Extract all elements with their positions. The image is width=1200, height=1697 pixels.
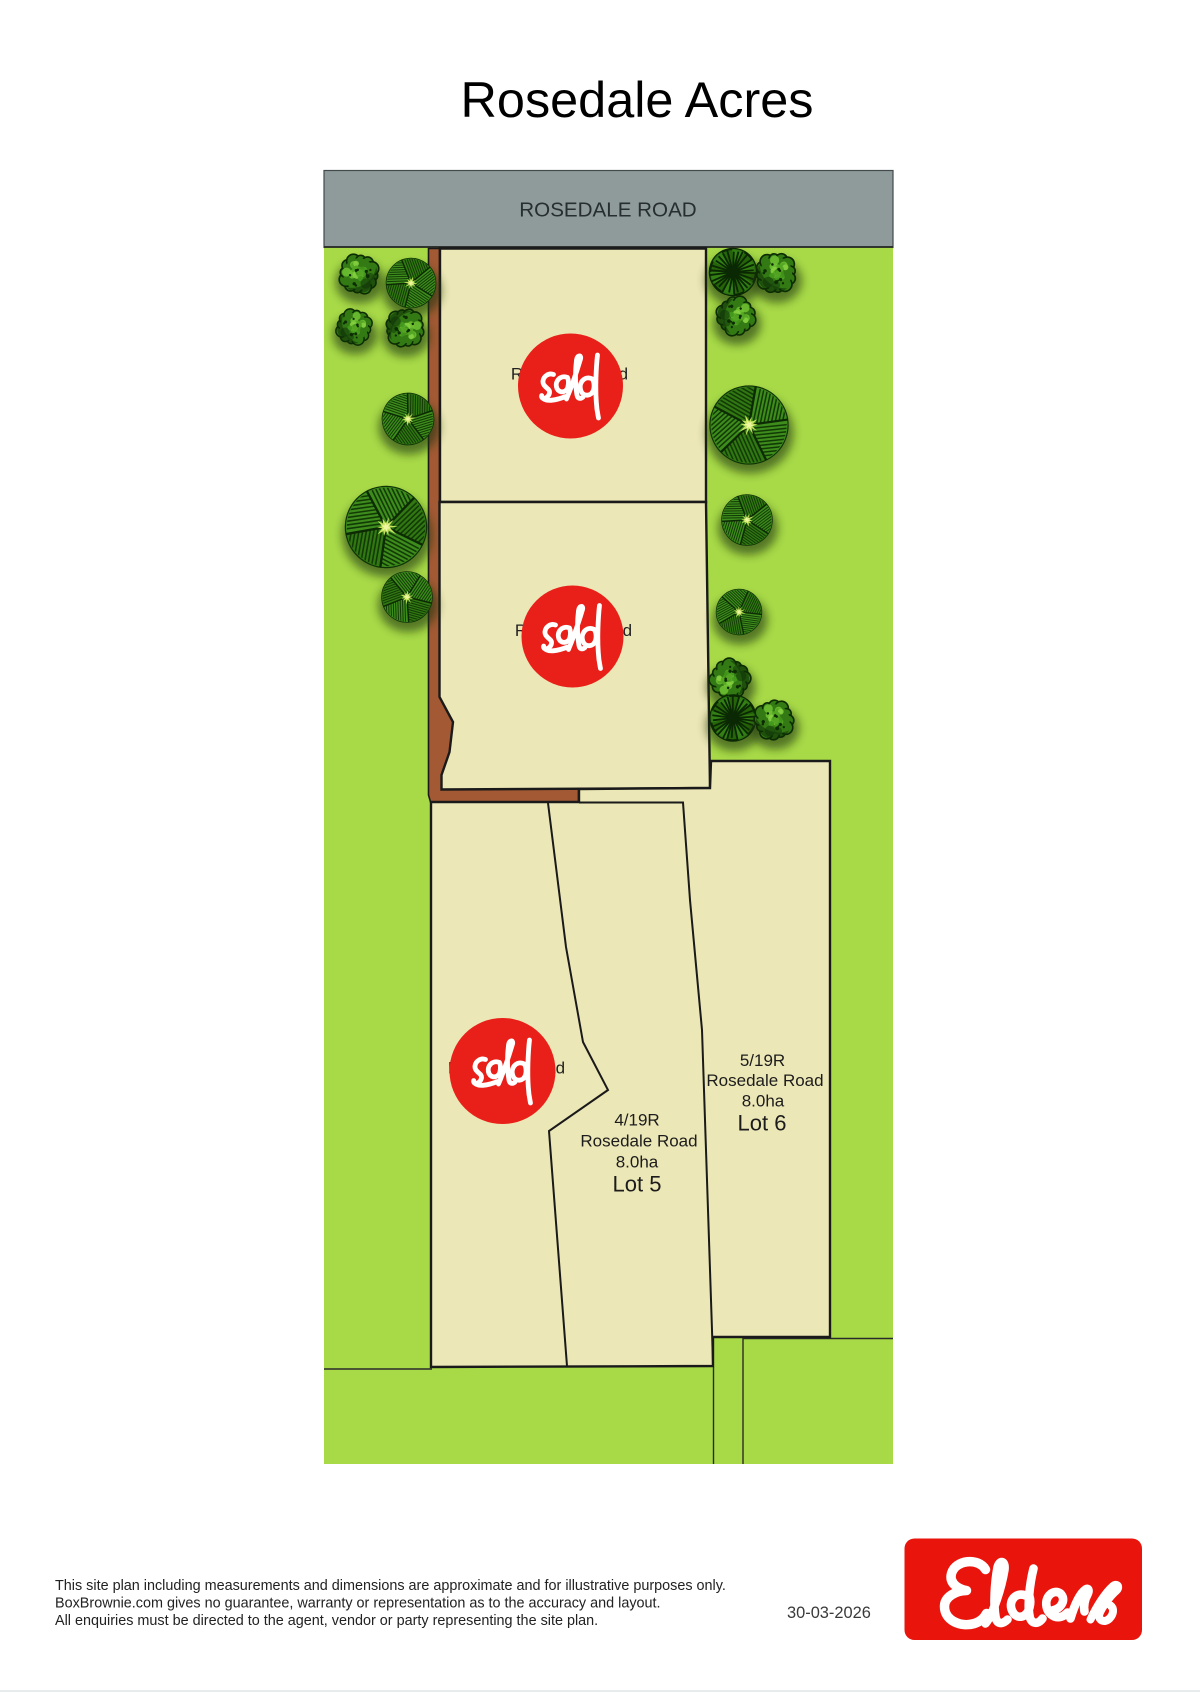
svg-text:30-03-2026: 30-03-2026 — [787, 1604, 871, 1622]
svg-text:ROSEDALE ROAD: ROSEDALE ROAD — [519, 199, 696, 222]
svg-text:Rosedale Road: Rosedale Road — [706, 1071, 823, 1090]
svg-text:Rosedale Road: Rosedale Road — [580, 1132, 697, 1151]
svg-text:This site plan including measu: This site plan including measurements an… — [55, 1578, 726, 1594]
svg-text:All enquiries must be directed: All enquiries must be directed to the ag… — [55, 1613, 598, 1629]
svg-text:Rosedale Acres: Rosedale Acres — [461, 71, 814, 128]
svg-text:8.0ha: 8.0ha — [742, 1092, 785, 1111]
svg-text:4/19R: 4/19R — [614, 1111, 659, 1130]
svg-text:8.0ha: 8.0ha — [616, 1153, 659, 1172]
svg-text:5/19R: 5/19R — [740, 1051, 785, 1070]
svg-text:Lot 6: Lot 6 — [738, 1111, 787, 1136]
svg-text:Lot 5: Lot 5 — [613, 1172, 662, 1197]
svg-text:BoxBrownie.com gives no guaran: BoxBrownie.com gives no guarantee, warra… — [55, 1596, 661, 1612]
